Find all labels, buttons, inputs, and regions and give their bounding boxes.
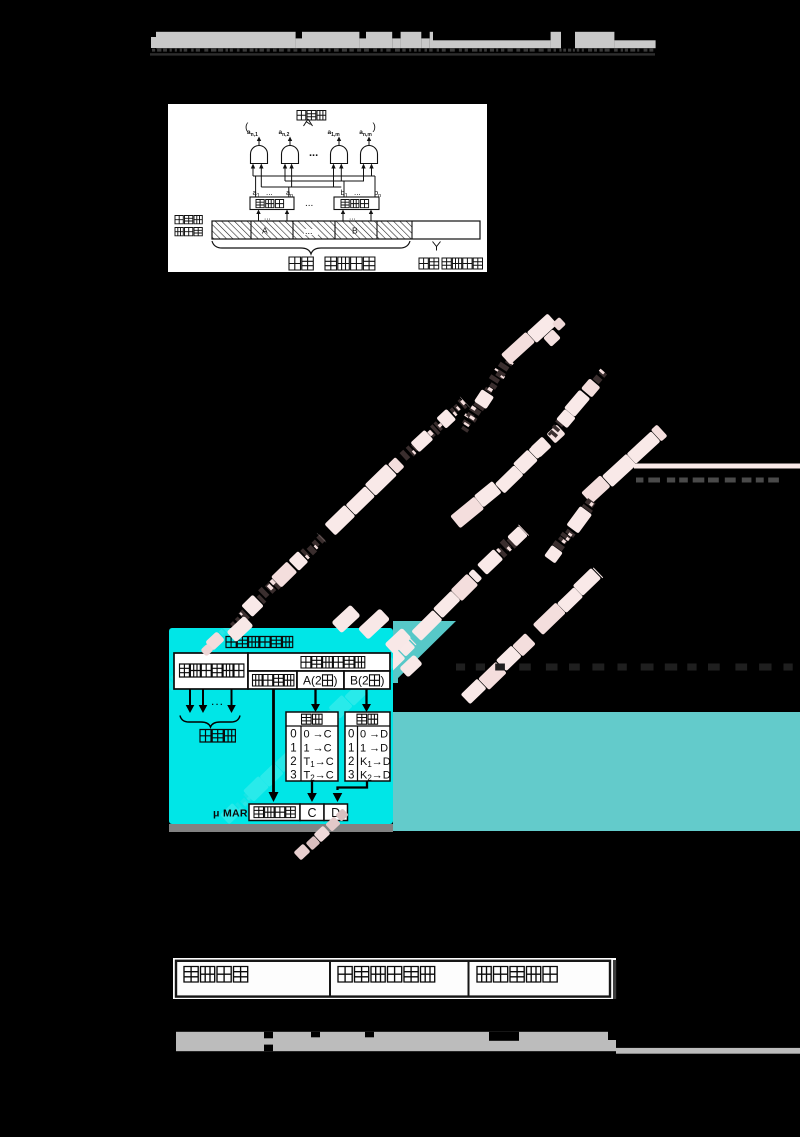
svg-text:): ) — [373, 122, 376, 133]
svg-text:K1→D: K1→D — [360, 756, 391, 769]
svg-text:2: 2 — [290, 756, 296, 768]
svg-text:...: ... — [264, 213, 271, 222]
svg-text:3: 3 — [290, 769, 296, 781]
svg-text:K2→D: K2→D — [360, 769, 391, 782]
svg-text:0: 0 — [290, 729, 296, 741]
svg-text:2: 2 — [348, 756, 354, 768]
svg-text:C: C — [307, 806, 316, 820]
svg-text:...: ... — [211, 694, 224, 708]
svg-text:...: ... — [305, 226, 313, 236]
svg-text:...: ... — [349, 213, 356, 222]
svg-text:T1→C: T1→C — [304, 756, 334, 769]
svg-text:1: 1 — [290, 742, 296, 754]
svg-text:A: A — [262, 226, 268, 236]
svg-text:0: 0 — [348, 729, 354, 741]
svg-text:...: ... — [354, 188, 361, 197]
svg-text:1 →D: 1 →D — [360, 742, 388, 754]
svg-text:A(2: A(2 — [303, 674, 322, 688]
svg-text:...: ... — [266, 188, 273, 197]
svg-text:0 →C: 0 →C — [304, 729, 332, 741]
svg-text:): ) — [381, 674, 385, 688]
svg-text:0 →D: 0 →D — [360, 729, 388, 741]
svg-text:...: ... — [305, 198, 313, 209]
svg-text:1: 1 — [348, 742, 354, 754]
svg-text:3: 3 — [348, 769, 354, 781]
svg-text:): ) — [334, 674, 338, 688]
svg-text:B: B — [352, 226, 358, 236]
svg-text:...: ... — [309, 147, 318, 159]
svg-text:T2→C: T2→C — [304, 769, 334, 782]
svg-text:B(2: B(2 — [350, 674, 369, 688]
svg-text:1 →C: 1 →C — [304, 742, 332, 754]
svg-text:μ MAR: μ MAR — [213, 808, 248, 820]
